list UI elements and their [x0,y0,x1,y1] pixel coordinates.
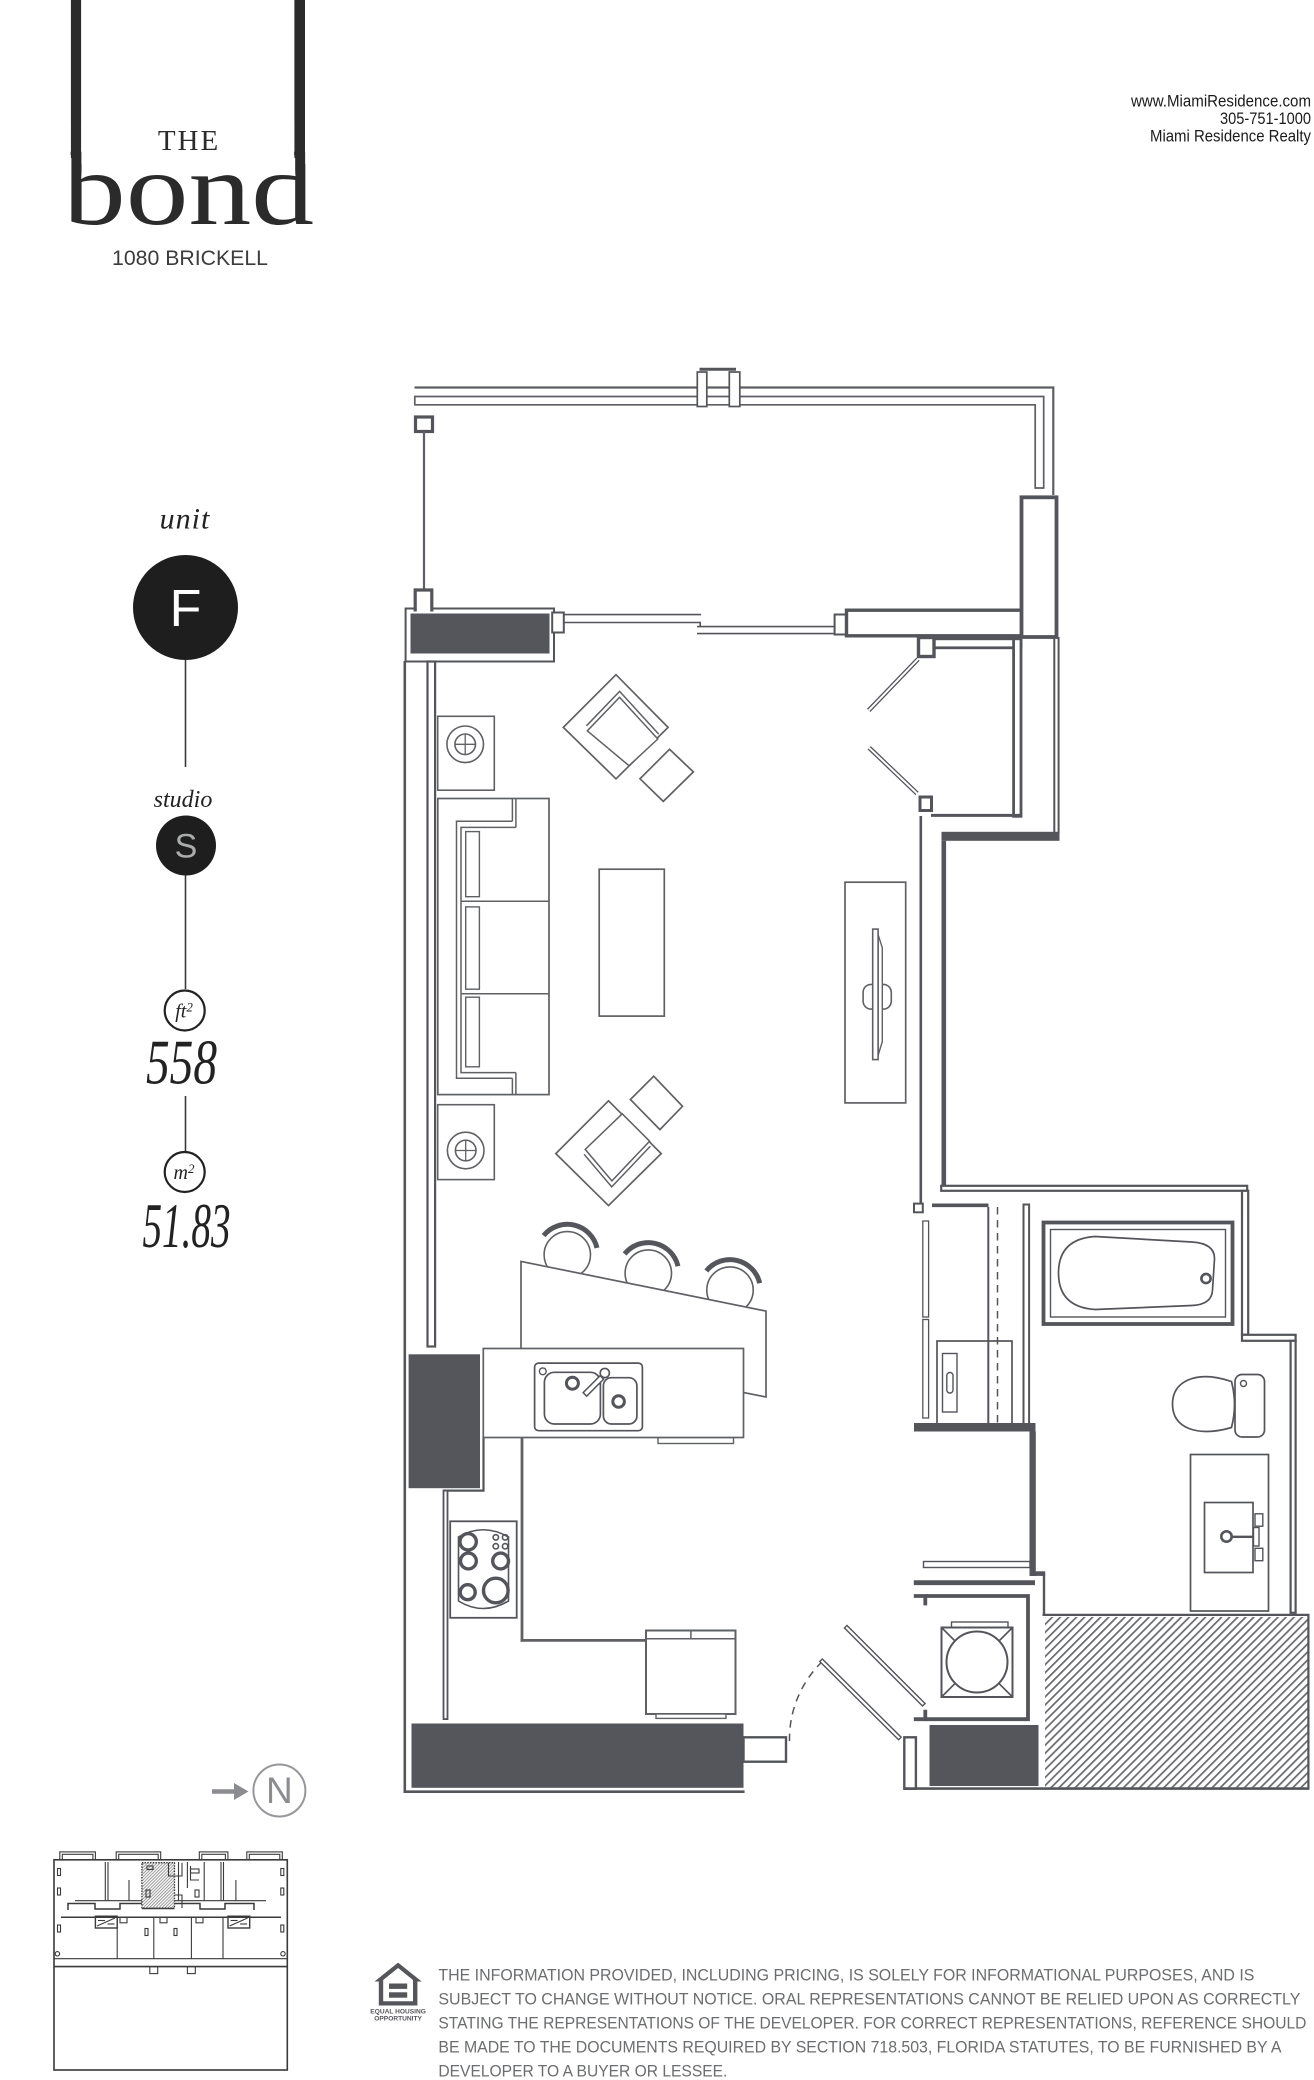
svg-text:S: S [175,828,198,866]
svg-text:F: F [170,580,202,638]
svg-text:bond: bond [63,132,314,247]
svg-text:SUBJECT TO CHANGE WITHOUT NOTI: SUBJECT TO CHANGE WITHOUT NOTICE. ORAL R… [438,1991,1300,2009]
svg-text:unit: unit [160,503,211,536]
svg-text:51.83: 51.83 [143,1190,231,1261]
svg-text:OPPORTUNITY: OPPORTUNITY [374,2016,422,2023]
svg-text:EQUAL HOUSING: EQUAL HOUSING [370,2009,426,2016]
svg-text:N: N [266,1770,293,1811]
svg-text:558: 558 [146,1027,217,1098]
svg-text:Miami Residence Realty: Miami Residence Realty [1150,127,1311,146]
svg-text:THE INFORMATION PROVIDED, INCL: THE INFORMATION PROVIDED, INCLUDING PRIC… [438,1967,1254,1985]
svg-text:DEVELOPER TO A BUYER OR LESSEE: DEVELOPER TO A BUYER OR LESSEE. [438,2063,727,2080]
svg-text:STATING THE REPRESENTATIONS OF: STATING THE REPRESENTATIONS OF THE DEVEL… [438,2015,1306,2033]
svg-text:studio: studio [154,787,213,813]
svg-text:1080 BRICKELL: 1080 BRICKELL [112,247,268,270]
svg-text:BE MADE TO THE DOCUMENTS REQUI: BE MADE TO THE DOCUMENTS REQUIRED BY SEC… [438,2039,1281,2057]
svg-text:305-751-1000: 305-751-1000 [1220,109,1311,128]
svg-text:www.MiamiResidence.com: www.MiamiResidence.com [1130,92,1311,111]
